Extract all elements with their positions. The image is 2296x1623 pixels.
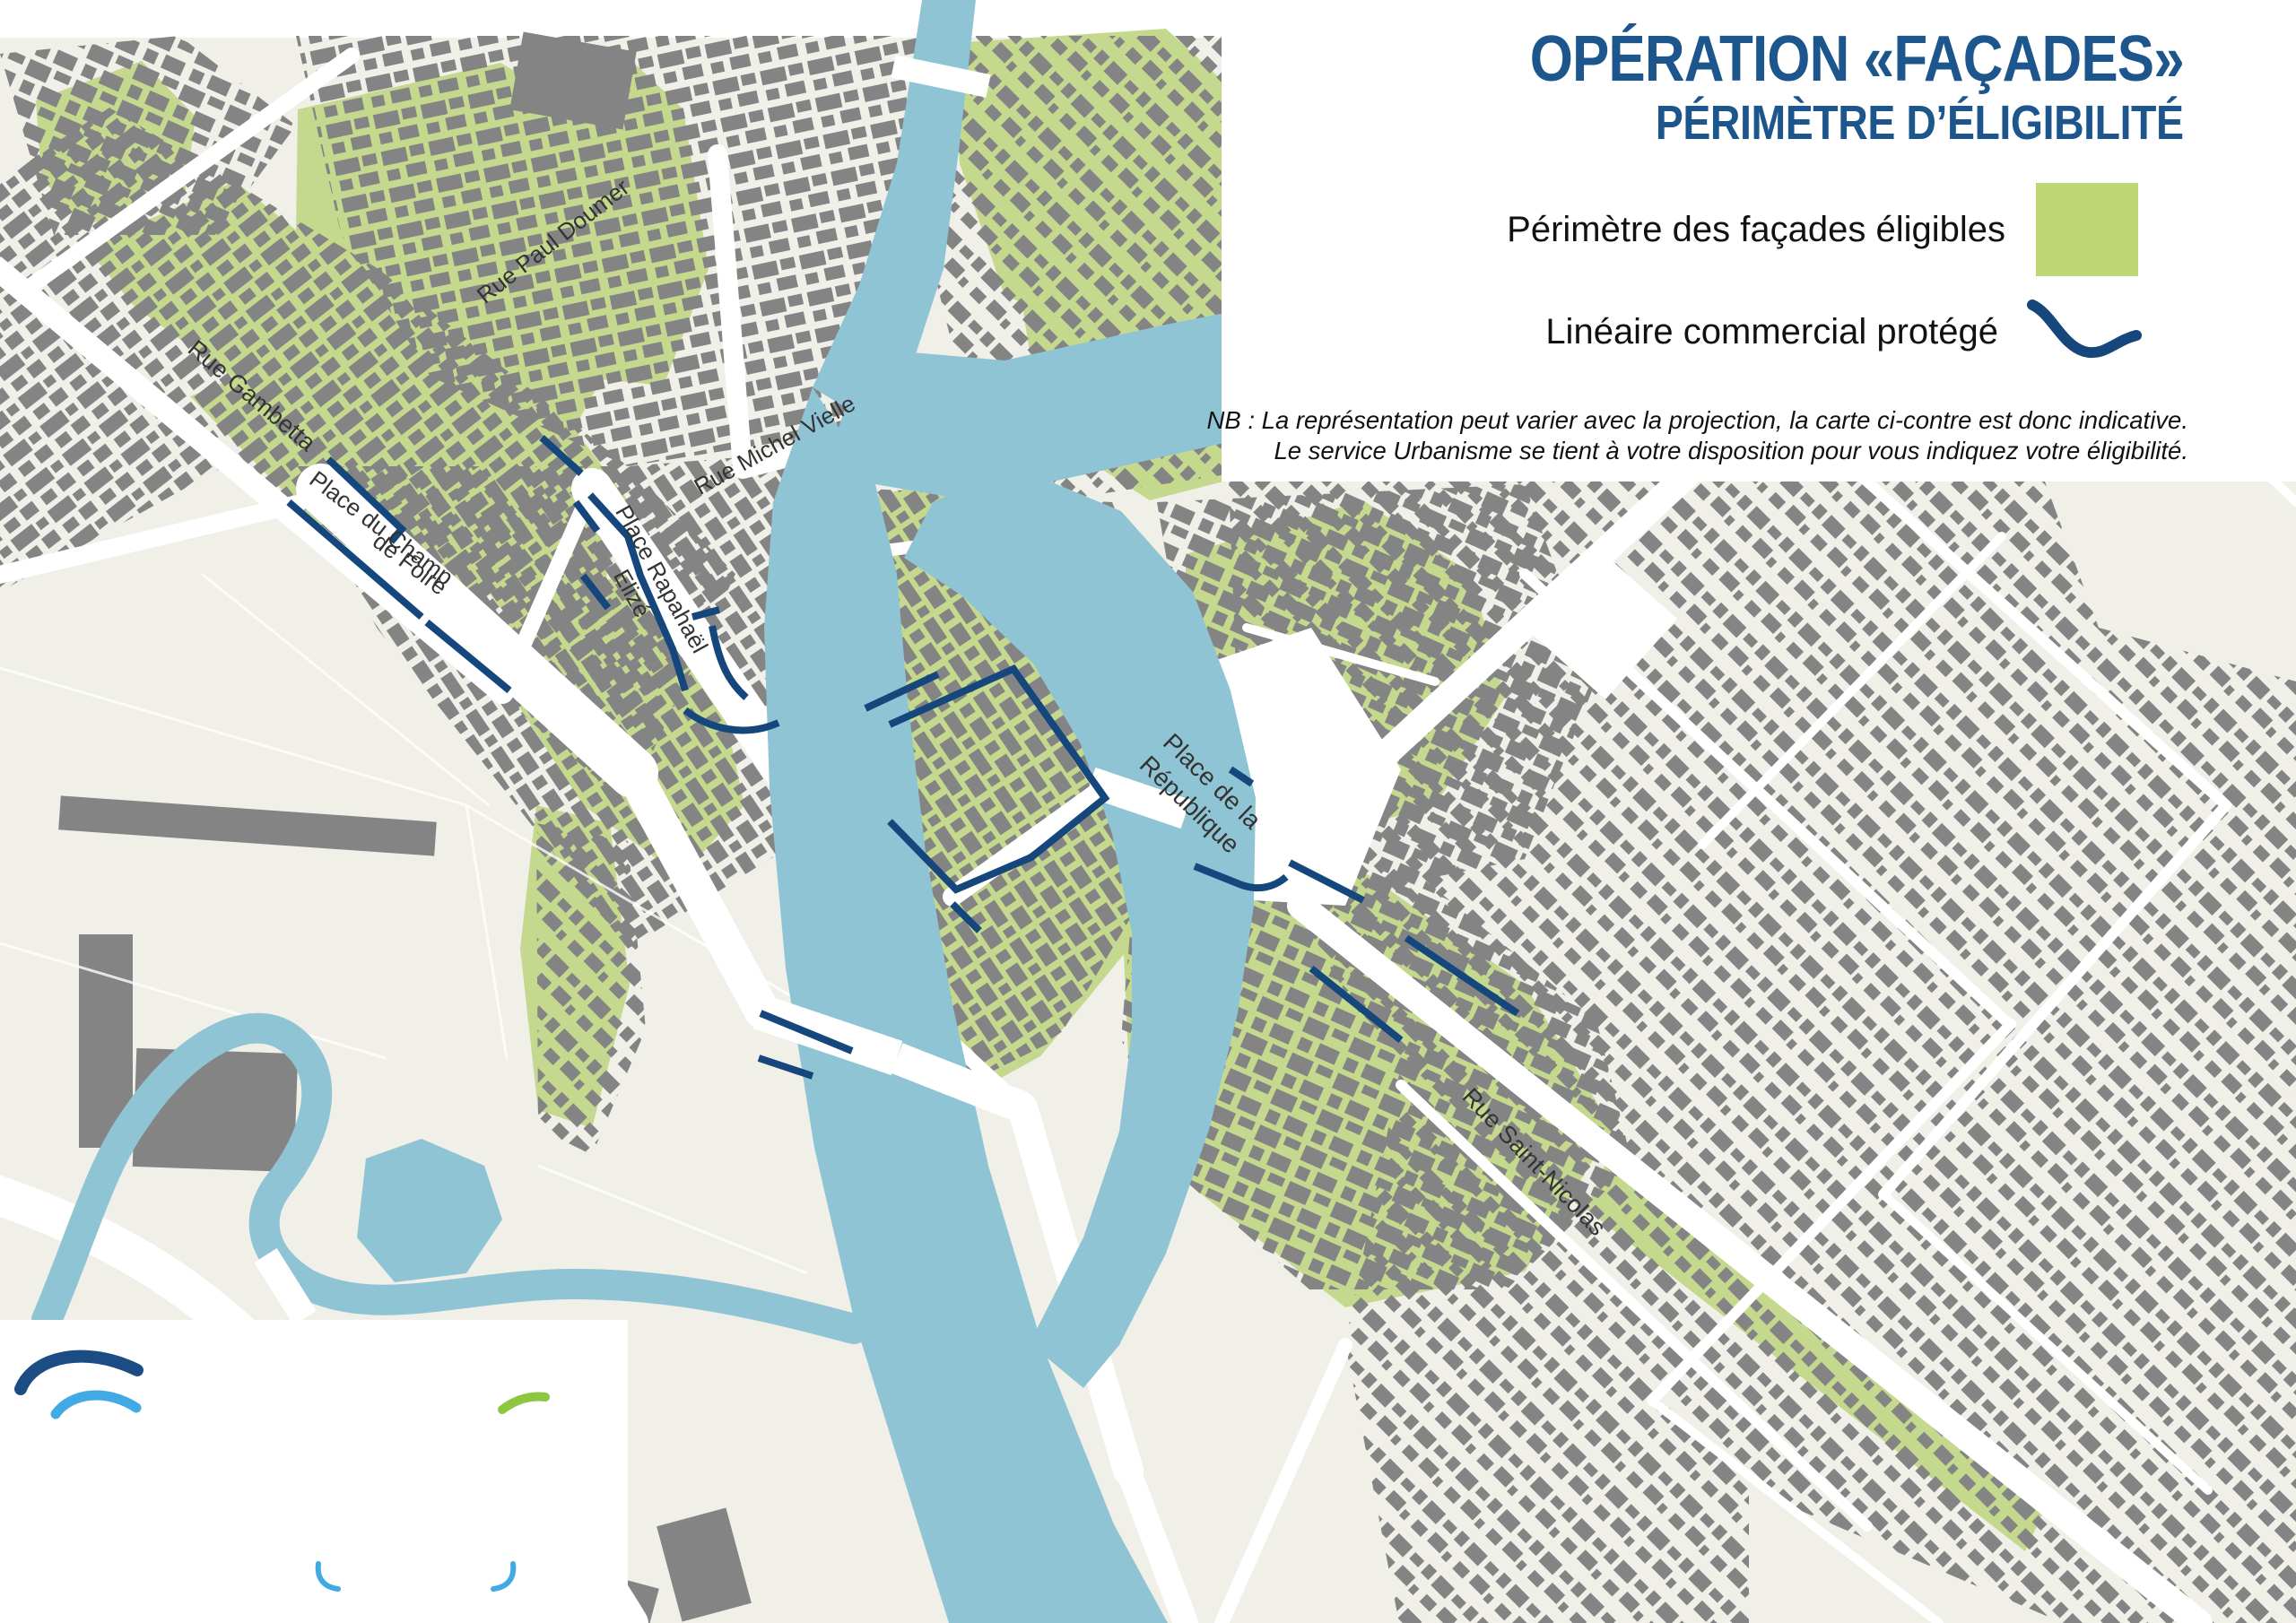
map-disclaimer-note: NB : La représentation peut varier avec … (1207, 405, 2188, 465)
legend-item-protected-linear: Linéaire commercial protégé (1545, 294, 2142, 369)
title-line-1: OPÉRATION «FAÇADES» (1530, 27, 2184, 91)
legend-item-eligible-perimeter: Périmètre des façades éligibles (1507, 183, 2138, 276)
legend-label-protected: Linéaire commercial protégé (1545, 312, 1998, 352)
logo-swoosh-icon (0, 1320, 628, 1623)
city-logo-panel: Sablé sarthe (0, 1320, 628, 1623)
note-line-2: Le service Urbanisme se tient à votre di… (1207, 436, 2188, 466)
legend-label-eligible: Périmètre des façades éligibles (1507, 210, 2005, 250)
navy-line-swatch (2025, 294, 2142, 369)
green-area-swatch (2036, 183, 2138, 276)
note-line-1: NB : La représentation peut varier avec … (1207, 405, 2188, 436)
page-title: OPÉRATION «FAÇADES» PÉRIMÈTRE D’ÉLIGIBIL… (1423, 27, 2184, 147)
operation-facades-map-page: Rue Gambetta Rue Paul Doumer Rue Michel … (0, 0, 2296, 1623)
title-line-2: PÉRIMÈTRE D’ÉLIGIBILITÉ (1656, 99, 2184, 147)
legend-panel: OPÉRATION «FAÇADES» PÉRIMÈTRE D’ÉLIGIBIL… (1222, 0, 2296, 482)
